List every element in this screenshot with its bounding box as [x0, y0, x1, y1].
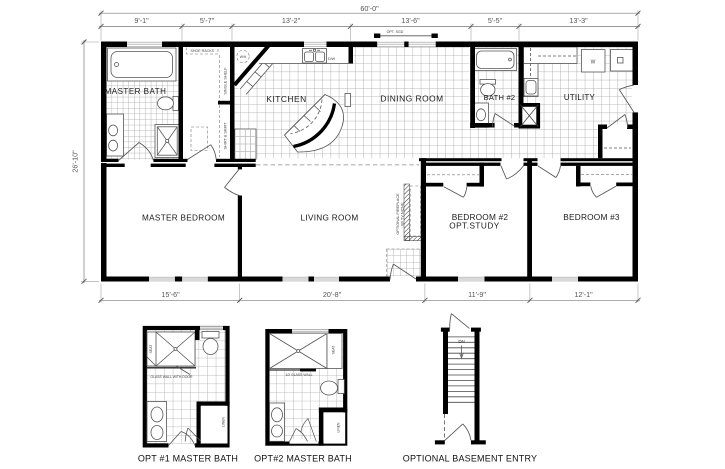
- svg-text:26'-10": 26'-10": [71, 150, 80, 173]
- svg-text:OPTIONAL BASEMENT ENTRY: OPTIONAL BASEMENT ENTRY: [403, 454, 537, 464]
- svg-text:20'-8": 20'-8": [323, 290, 342, 299]
- svg-text:OPT #1 MASTER BATH: OPT #1 MASTER BATH: [138, 454, 238, 464]
- svg-text:LINEN: LINEN: [337, 422, 341, 433]
- svg-text:15'-6": 15'-6": [161, 290, 180, 299]
- svg-text:13'-2": 13'-2": [282, 16, 301, 25]
- svg-text:OPT. SGD: OPT. SGD: [387, 30, 404, 34]
- svg-text:MASTER BEDROOM: MASTER BEDROOM: [142, 213, 225, 222]
- svg-text:5'-7": 5'-7": [200, 16, 215, 25]
- svg-text:KITCHEN: KITCHEN: [266, 94, 306, 104]
- svg-text:LINEN: LINEN: [222, 416, 226, 427]
- svg-text:GLASS WALL WITH DOOR: GLASS WALL WITH DOOR: [151, 375, 193, 379]
- svg-text:OPT.STUDY: OPT.STUDY: [449, 221, 499, 230]
- svg-text:SINGLE SHELF: SINGLE SHELF: [224, 67, 228, 95]
- svg-text:11'-9": 11'-9": [468, 290, 486, 299]
- svg-text:W/H: W/H: [240, 55, 247, 59]
- svg-text:BATH #2: BATH #2: [484, 93, 516, 102]
- svg-text:W: W: [591, 60, 596, 66]
- svg-text:60'-0": 60'-0": [360, 4, 379, 13]
- svg-text:13'-3": 13'-3": [569, 16, 588, 25]
- svg-text:5'-5": 5'-5": [488, 16, 503, 25]
- svg-text:13'-6": 13'-6": [401, 16, 420, 25]
- svg-text:9'-1": 9'-1": [134, 16, 149, 25]
- svg-text:D/W: D/W: [328, 57, 336, 61]
- svg-text:OPT#2 MASTER BATH: OPT#2 MASTER BATH: [254, 454, 352, 464]
- svg-text:12'-1": 12'-1": [574, 290, 593, 299]
- svg-text:UTILITY: UTILITY: [564, 93, 596, 102]
- svg-text:DN: DN: [458, 339, 464, 344]
- svg-text:SHOE RACKS: SHOE RACKS: [191, 49, 215, 53]
- svg-text:MASTER BATH: MASTER BATH: [105, 87, 167, 96]
- svg-text:DINING ROOM: DINING ROOM: [380, 94, 443, 104]
- svg-text:W/ TV NICHE: W/ TV NICHE: [401, 202, 405, 226]
- svg-text:BEDROOM #3: BEDROOM #3: [563, 212, 620, 222]
- svg-text:1/2 GLASS WALL: 1/2 GLASS WALL: [285, 373, 312, 377]
- svg-text:SEAT: SEAT: [149, 345, 153, 354]
- svg-text:SHIRT & SKIRT: SHIRT & SKIRT: [224, 122, 228, 150]
- svg-text:OPTIONAL FIREPLACE: OPTIONAL FIREPLACE: [396, 193, 400, 235]
- svg-text:LIVING ROOM: LIVING ROOM: [301, 213, 359, 222]
- svg-text:SEAT: SEAT: [332, 346, 336, 355]
